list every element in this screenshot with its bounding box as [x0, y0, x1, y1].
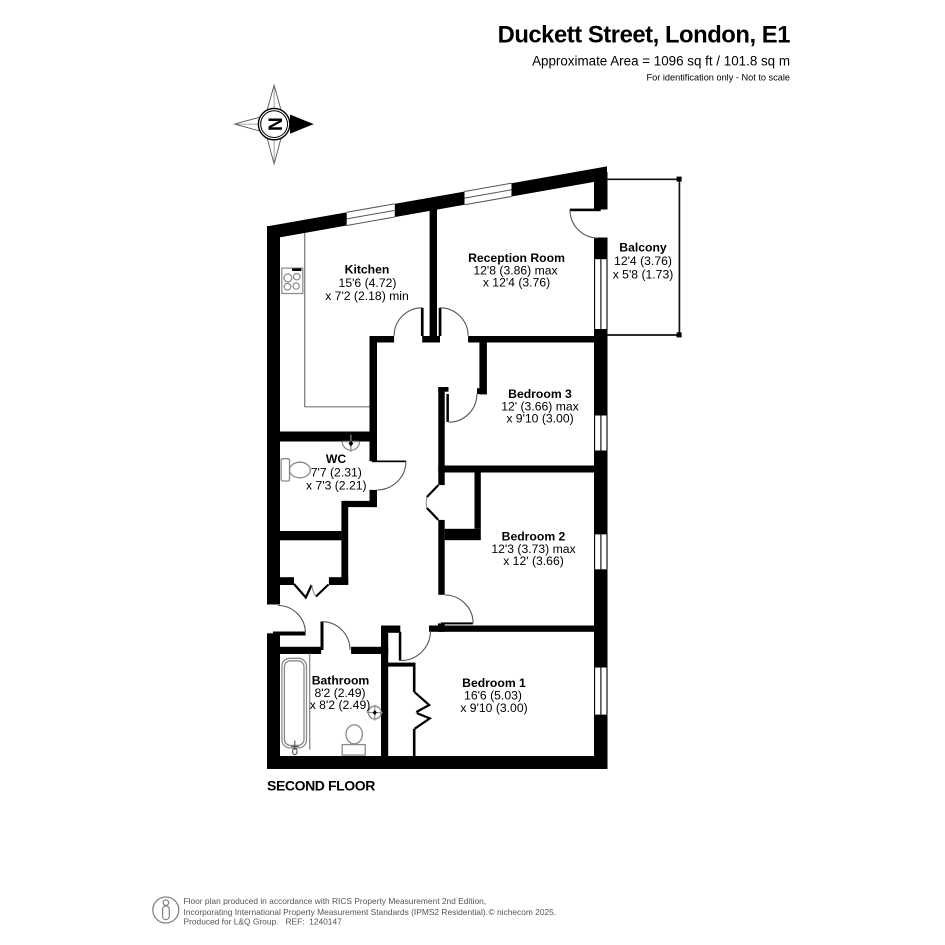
- svg-text:Duckett Street, London, E1: Duckett Street, London, E1: [498, 22, 791, 49]
- svg-text:x 7'2 (2.18) min: x 7'2 (2.18) min: [325, 289, 409, 303]
- svg-text:Approximate Area = 1096 sq ft: Approximate Area = 1096 sq ft / 101.8 sq…: [532, 54, 790, 69]
- svg-text:x 8'2 (2.49): x 8'2 (2.49): [310, 698, 371, 712]
- svg-text:Produced for L&Q Group. REF:: Produced for L&Q Group. REF: 1240147: [184, 917, 343, 927]
- svg-text:x 9'10 (3.00): x 9'10 (3.00): [460, 701, 527, 715]
- svg-text:© nichecom 2025.: © nichecom 2025.: [489, 907, 557, 917]
- svg-text:Kitchen: Kitchen: [345, 263, 390, 277]
- svg-text:Incorporating International Pr: Incorporating International Property Mea…: [184, 907, 488, 917]
- svg-text:x 9'10 (3.00): x 9'10 (3.00): [506, 412, 573, 426]
- svg-text:For identification only - Not: For identification only - Not to scale: [647, 73, 791, 83]
- svg-text:15'6 (4.72): 15'6 (4.72): [339, 276, 397, 290]
- svg-text:Balcony: Balcony: [619, 241, 667, 255]
- svg-text:x 12'4 (3.76): x 12'4 (3.76): [483, 276, 550, 290]
- svg-text:Floor plan produced in accorda: Floor plan produced in accordance with R…: [184, 896, 487, 906]
- svg-text:x 5'8 (1.73): x 5'8 (1.73): [613, 268, 674, 282]
- svg-text:N: N: [264, 117, 285, 131]
- svg-text:12'4 (3.76): 12'4 (3.76): [614, 254, 672, 268]
- svg-text:x 7'3 (2.21): x 7'3 (2.21): [306, 479, 367, 493]
- svg-text:x 12' (3.66): x 12' (3.66): [503, 554, 564, 568]
- svg-text:7'7 (2.31): 7'7 (2.31): [311, 466, 362, 480]
- svg-text:WC: WC: [326, 452, 347, 466]
- svg-text:SECOND FLOOR: SECOND FLOOR: [267, 778, 375, 794]
